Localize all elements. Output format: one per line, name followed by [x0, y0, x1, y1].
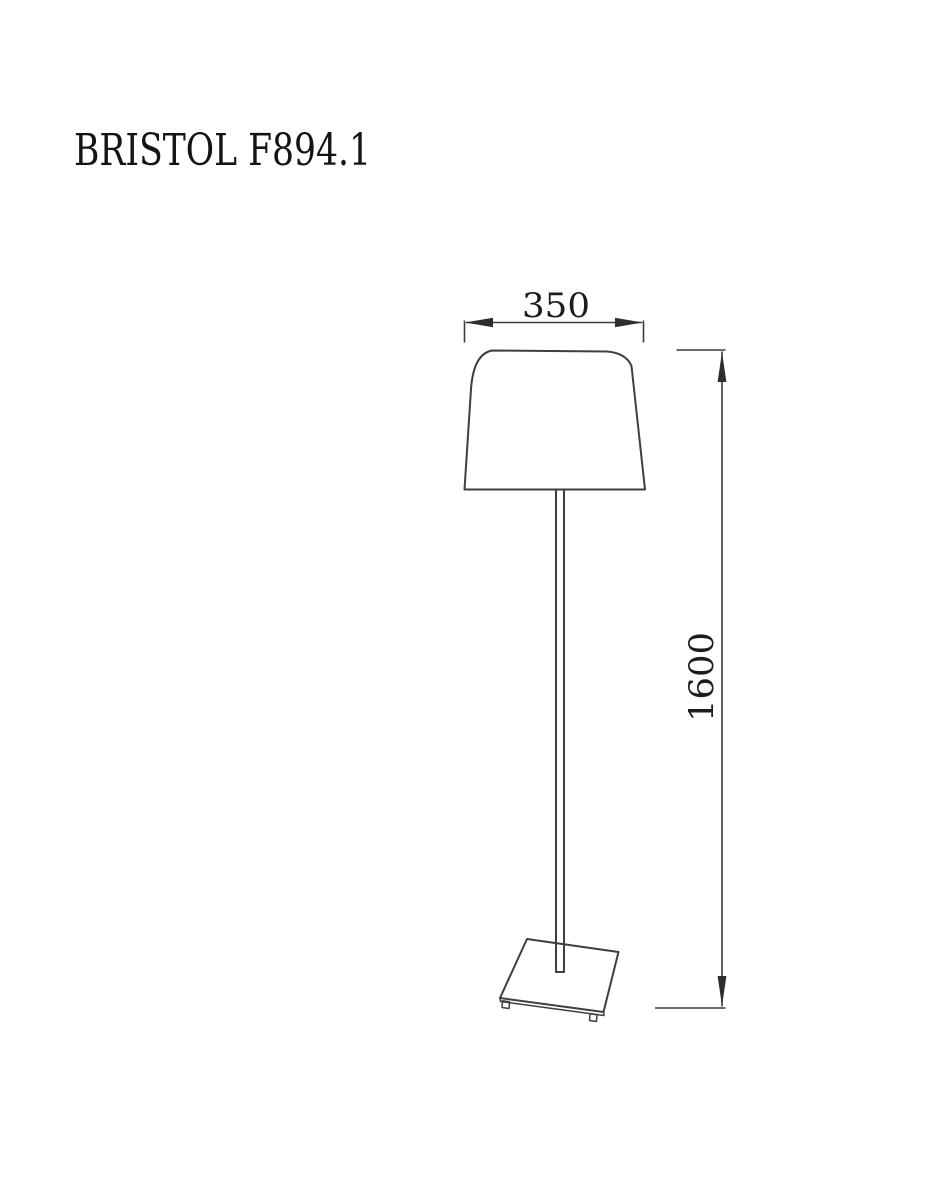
lamp-base-foot-left [502, 1001, 510, 1009]
lamp-pole [556, 490, 564, 973]
height-arrow-down-icon [718, 976, 727, 1006]
drawing-canvas: BRISTOL F894.1 350 [0, 0, 927, 1200]
width-dimension: 350 [465, 286, 644, 343]
floor-lamp-drawing [465, 351, 646, 1022]
product-title: BRISTOL F894.1 [74, 125, 371, 176]
lamp-base-plate [500, 939, 619, 1012]
width-dimension-label: 350 [522, 286, 590, 326]
height-arrow-up-icon [718, 352, 727, 382]
height-dimension-label: 1600 [682, 632, 722, 722]
lamp-shade-outline [465, 351, 646, 490]
width-arrow-left-icon [465, 318, 493, 327]
dimension-sheet: BRISTOL F894.1 350 [0, 0, 927, 1200]
height-dimension: 1600 [655, 350, 726, 1008]
lamp-base-foot-right [590, 1014, 598, 1022]
width-arrow-right-icon [615, 318, 643, 327]
